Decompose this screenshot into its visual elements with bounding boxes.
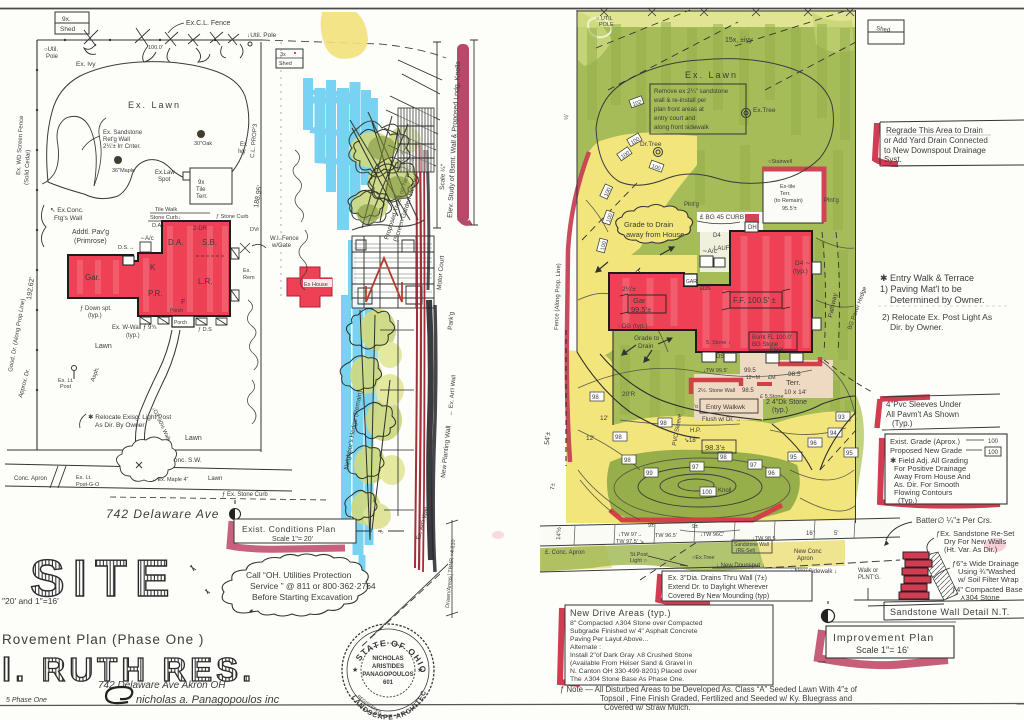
svg-text:★: ★ (352, 666, 358, 674)
svg-text:Terr.: Terr. (786, 378, 801, 387)
svg-text:(Typ.): (Typ.) (892, 419, 913, 428)
svg-text:Post: Post (60, 384, 71, 390)
svg-text:Call “OH. Utilities Protection: Call “OH. Utilities Protection (246, 570, 352, 580)
svg-text:away from House: away from House (626, 230, 684, 239)
svg-text:○Stairwell: ○Stairwell (768, 159, 792, 165)
svg-text:Apron: Apron (797, 556, 813, 562)
svg-text:Subgrade Finished w/ 4" Asphal: Subgrade Finished w/ 4" Asphalt Concrete (570, 628, 698, 635)
svg-text:Knoll: Knoll (718, 488, 731, 494)
svg-text:Remove ex 2¼" sandstone: Remove ex 2¼" sandstone (654, 88, 729, 95)
svg-text:Terr.: Terr. (196, 194, 208, 200)
svg-text:S.B.: S.B. (202, 238, 217, 247)
svg-text:(typ.): (typ.) (793, 268, 808, 275)
svg-text:Ret'g Wall: Ret'g Wall (103, 137, 130, 143)
svg-text:½': ½' (563, 114, 570, 120)
svg-text:F.F. 100.5' ±: F.F. 100.5' ± (733, 296, 776, 305)
svg-text:20'R: 20'R (622, 391, 635, 398)
svg-text:Plnt'g: Plnt'g (824, 198, 839, 204)
svg-text:Floor: Floor (770, 347, 784, 353)
svg-text:↓TW 96C': ↓TW 96C' (700, 532, 724, 538)
svg-text:↓TW 99.5': ↓TW 99.5' (703, 368, 728, 374)
svg-text:Ex House: Ex House (304, 282, 328, 288)
svg-text:D4: D4 (713, 233, 721, 239)
svg-text:(typ.): (typ.) (126, 333, 140, 339)
svg-text:POLE: POLE (599, 22, 614, 28)
svg-text:Ex. Lawn: Ex. Lawn (685, 70, 738, 80)
svg-text:4"Pvc Sleeves Under: 4"Pvc Sleeves Under (886, 400, 962, 409)
svg-text:Dr.Tree: Dr.Tree (640, 141, 662, 148)
svg-text:Ivy: Ivy (238, 149, 246, 155)
svg-text:The ⋏304 Stone Base As Phase O: The ⋏304 Stone Base As Phase One. (570, 676, 684, 683)
svg-text:Ex. 3"Dia. Drains Thru Wall (7: Ex. 3"Dia. Drains Thru Wall (7±) (668, 575, 767, 582)
svg-text:100: 100 (702, 490, 713, 496)
svg-text:All Pavm't As Shown: All Pavm't As Shown (886, 410, 959, 419)
svg-text:DH: DH (748, 225, 757, 231)
svg-text:5. Stone ↓: 5. Stone ↓ (706, 340, 731, 346)
svg-text:Scale ¼": Scale ¼" (439, 163, 447, 190)
svg-text:Ex. Lawn: Ex. Lawn (128, 100, 181, 110)
svg-text:Ex. W-Wall ƒ 9¾: Ex. W-Wall ƒ 9¾ (112, 325, 157, 331)
svg-text:∼A/c: ∼A/c (140, 236, 154, 242)
svg-text:Batter∅ ¼"± Per Crs.: Batter∅ ¼"± Per Crs. (916, 516, 992, 525)
svg-text:Grade to Drain: Grade to Drain (624, 220, 673, 229)
svg-text:✱ Entry Walk & Terrace: ✱ Entry Walk & Terrace (880, 273, 974, 283)
svg-text:ƒ Down spt.: ƒ Down spt. (80, 306, 112, 312)
svg-text:(Ht. Var. As Dir.): (Ht. Var. As Dir.) (944, 545, 998, 554)
svg-text:Syst.: Syst. (884, 155, 902, 164)
svg-text:Proposed New Grade: Proposed New Grade (890, 446, 962, 455)
svg-text:8" Compacted ⋏304 Stone over C: 8" Compacted ⋏304 Stone over Compacted (570, 620, 703, 627)
svg-text:(Available From Heiser Sand &: (Available From Heiser Sand & Gravel in (570, 660, 692, 667)
svg-text:Lawn: Lawn (185, 435, 202, 442)
svg-text:10 x 14': 10 x 14' (784, 389, 807, 396)
svg-text:2¼'±: 2¼'± (622, 286, 636, 293)
svg-text:(Typ.): (Typ.) (898, 496, 918, 505)
svg-text:w/ Soil Filter Wrap: w/ Soil Filter Wrap (957, 575, 1019, 584)
svg-text:Conc. Apron: Conc. Apron (14, 476, 47, 482)
svg-text:36"Maple: 36"Maple (112, 168, 135, 174)
svg-text:99: 99 (646, 471, 653, 477)
svg-text:entry court and: entry court and (654, 115, 696, 122)
svg-text:Covered By New Mounding (typ): Covered By New Mounding (typ) (668, 593, 769, 600)
svg-text:98: 98 (720, 455, 727, 461)
svg-text:Light ○: Light ○ (630, 558, 647, 564)
svg-text:★: ★ (417, 666, 423, 674)
svg-text:Improvement Plan: Improvement Plan (833, 632, 934, 644)
svg-text:3x: 3x (280, 52, 286, 58)
svg-text:100.0': 100.0' (148, 45, 163, 51)
svg-text:54'±: 54'± (544, 431, 552, 445)
svg-text:Dir. by Owner.: Dir. by Owner. (890, 322, 943, 332)
svg-text:(RE-Set): (RE-Set) (736, 548, 756, 554)
svg-text:Alternate :: Alternate : (570, 644, 601, 651)
svg-text:Grade to: Grade to (634, 335, 660, 342)
svg-text:Plnt'g: Plnt'g (684, 202, 699, 208)
svg-text:↘18': ↘18' (684, 438, 697, 444)
svg-text:Scale 1″= 16': Scale 1″= 16' (856, 645, 909, 655)
svg-text:Bsmt FL 100.0': Bsmt FL 100.0' (752, 335, 792, 341)
svg-text:97: 97 (692, 465, 699, 471)
svg-text:LAUF-: LAUF- (714, 246, 731, 252)
svg-text:Ex.: Ex. (243, 268, 251, 274)
svg-text:100: 100 (988, 439, 999, 445)
svg-text:Shed: Shed (60, 26, 76, 33)
svg-text:Tile Walk: Tile Walk (155, 207, 177, 213)
svg-text:w/Gate: w/Gate (271, 243, 292, 249)
svg-text:wall & re-install per: wall & re-install per (653, 97, 706, 104)
svg-text:Covered w/ Straw Mulch.: Covered w/ Straw Mulch. (604, 703, 691, 712)
svg-text:742 Delaware Ave Akron OH: 742 Delaware Ave Akron OH (98, 680, 226, 691)
svg-text:(typ.): (typ.) (88, 313, 102, 319)
svg-text:PANAGOPOULOS: PANAGOPOULOS (362, 672, 413, 678)
svg-text:Exist. Grade (Aprox.): Exist. Grade (Aprox.) (890, 437, 961, 446)
svg-text:nicholas a. Panagopoulos inc: nicholas a. Panagopoulos inc (136, 694, 280, 706)
svg-text:along front sidewalk: along front sidewalk (654, 124, 710, 131)
svg-text:Ex. Sandstone: Ex. Sandstone (103, 130, 143, 136)
svg-text:Exist. Conditions Plan: Exist. Conditions Plan (242, 524, 336, 534)
svg-text:Porch: Porch (174, 320, 187, 326)
svg-text:Topsoil , Fine Finish Graded,: Topsoil , Fine Finish Graded, Fertilized… (600, 694, 852, 703)
svg-text:16': 16' (806, 531, 814, 537)
svg-text:New Drive Areas (typ.): New Drive Areas (typ.) (570, 608, 671, 618)
svg-text:New Conc: New Conc (794, 549, 822, 555)
svg-text:↖ Ex.Conc.: ↖ Ex.Conc. (50, 207, 84, 214)
svg-text:Ex.Law: Ex.Law (155, 170, 175, 176)
svg-text:Install 2"of Dark Gray ⋏8 Crus: Install 2"of Dark Gray ⋏8 Crushed Stone (570, 652, 692, 659)
svg-text:99.5'±: 99.5'± (631, 305, 651, 314)
svg-text:2½. Stone Wall: 2½. Stone Wall (698, 387, 735, 394)
svg-text:2 4"Dk Stone: 2 4"Dk Stone (766, 399, 807, 406)
svg-text:H.P.: H.P. (690, 428, 701, 434)
svg-text:K: K (150, 263, 156, 272)
svg-text:Tile: Tile (196, 187, 206, 193)
svg-text:↓Util. Pole: ↓Util. Pole (247, 32, 277, 39)
svg-text:Ex.C.L. Fence: Ex.C.L. Fence (186, 20, 230, 27)
svg-text:99.5: 99.5 (744, 368, 756, 374)
svg-text:○: ○ (380, 530, 384, 536)
svg-text:Gar: Gar (633, 296, 646, 305)
svg-text:P.R.: P.R. (148, 289, 163, 298)
svg-text:Pole: Pole (46, 54, 59, 60)
svg-text:←Ex. Maple 4": ←Ex. Maple 4" (152, 477, 189, 483)
svg-text:95.5'±: 95.5'± (782, 206, 797, 212)
svg-text:Post-G-O: Post-G-O (76, 482, 100, 488)
svg-text:or Add Yard Drain Connected: or Add Yard Drain Connected (884, 136, 988, 145)
svg-text:5 Phase One: 5 Phase One (6, 697, 47, 704)
svg-text:(typ.): (typ.) (772, 407, 788, 414)
svg-text:30"Oak: 30"Oak (194, 141, 212, 147)
svg-text:PLNT'G.: PLNT'G. (858, 575, 881, 581)
svg-text:95: 95 (846, 451, 853, 457)
svg-text:Shed: Shed (279, 61, 292, 67)
svg-text:98: 98 (615, 435, 622, 441)
svg-text:96: 96 (768, 471, 775, 477)
svg-text:W.I. Fence: W.I. Fence (270, 236, 299, 242)
svg-text:Drain: Drain (638, 343, 654, 350)
svg-text:Spot: Spot (158, 177, 171, 183)
svg-text:Gar.: Gar. (85, 273, 100, 282)
svg-text:Ex: Ex (240, 142, 247, 148)
svg-text:£ BG 45 CURB: £ BG 45 CURB (700, 214, 744, 221)
svg-text:○Util.: ○Util. (44, 47, 58, 53)
svg-text:14'½: 14'½ (555, 527, 563, 540)
svg-text:100: 100 (988, 450, 999, 456)
svg-text:Lawn: Lawn (208, 476, 222, 482)
svg-text:Determined by Owner.: Determined by Owner. (890, 295, 985, 306)
svg-text:98.5: 98.5 (788, 371, 801, 378)
svg-text:ƒ D.S: ƒ D.S (198, 327, 212, 333)
svg-text:ARISTIDES: ARISTIDES (372, 664, 404, 670)
svg-text:98: 98 (660, 421, 667, 427)
svg-text:ƒ Ex. Stone Curb: ƒ Ex. Stone Curb (222, 492, 268, 498)
svg-text:9x.: 9x. (62, 16, 71, 23)
svg-text:○DS (typ.): ○DS (typ.) (618, 323, 648, 330)
svg-text:TW 96.5': TW 96.5' (655, 533, 677, 539)
svg-text:2¼'± Irr Cnter.: 2¼'± Irr Cnter. (103, 144, 141, 150)
svg-text:to New Downspout Drainage: to New Downspout Drainage (884, 146, 986, 155)
svg-text:12∼M: 12∼M (746, 375, 760, 381)
svg-text:NICHOLAS: NICHOLAS (372, 656, 403, 662)
svg-text:£M: £M (768, 375, 776, 381)
svg-text:98.3'±: 98.3'± (705, 443, 725, 452)
svg-text:12': 12' (586, 435, 594, 442)
svg-text:Walk or: Walk or (858, 568, 878, 574)
svg-text:742 Delaware Ave: 742 Delaware Ave (106, 507, 219, 521)
svg-text:✱ Relocate Exisg. Light Post: ✱ Relocate Exisg. Light Post (88, 413, 171, 421)
svg-text:Rovement Plan (Phase One ): Rovement Plan (Phase One ) (2, 632, 204, 647)
svg-text:Sandstone Wall Detail N.T.: Sandstone Wall Detail N.T. (890, 607, 1010, 617)
svg-text:96: 96 (810, 441, 817, 447)
svg-text:As Dir. By Owner: As Dir. By Owner (95, 422, 145, 429)
svg-text:5': 5' (834, 531, 838, 537)
svg-text:12': 12' (600, 415, 608, 422)
svg-text:(to Remain): (to Remain) (774, 198, 803, 204)
svg-text:DVr: DVr (250, 227, 259, 233)
svg-text:↓TW 97→: ↓TW 97→ (618, 532, 642, 538)
svg-text:Ex-tile: Ex-tile (780, 184, 795, 190)
svg-text:Flush w/ Dr. →: Flush w/ Dr. → (702, 417, 741, 423)
svg-text:Before Starting Excavation: Before Starting Excavation (252, 592, 353, 602)
svg-text:98.5: 98.5 (742, 388, 754, 394)
svg-text:F: F (181, 299, 185, 306)
svg-text:£DS: £DS (700, 286, 711, 292)
svg-text:7±: 7± (550, 482, 557, 490)
svg-text:Rem: Rem (243, 275, 255, 281)
svg-text:Service ” @ 811 or 800·362·276: Service ” @ 811 or 800·362·2764 (250, 581, 376, 591)
svg-text:ƒ Stone Curb: ƒ Stone Curb (216, 214, 248, 220)
svg-text:98: 98 (592, 395, 599, 401)
svg-text:GAR: GAR (686, 279, 697, 285)
svg-text:Terr.: Terr. (780, 191, 791, 197)
svg-text:Ftg's Wall: Ftg's Wall (54, 215, 83, 222)
svg-text:Ex. Lt.: Ex. Lt. (76, 475, 92, 481)
svg-text:○Ex.Tree: ○Ex.Tree (692, 555, 714, 561)
svg-text:D.A.: D.A. (168, 238, 184, 247)
svg-text:D.A.·: D.A.· (152, 223, 165, 229)
svg-text:Lawn: Lawn (95, 343, 112, 350)
svg-text:15x, ±ivy: 15x, ±ivy (725, 37, 753, 44)
svg-text:9x: 9x (198, 180, 204, 186)
svg-text:Addtl. Pav'g: Addtl. Pav'g (72, 229, 109, 236)
svg-text:D.S.→: D.S.→ (118, 245, 134, 251)
svg-text:Ex.Tree: Ex.Tree (753, 107, 776, 114)
svg-text:98: 98 (624, 458, 631, 464)
svg-text:ƒ Note — All Disturbed Areas t: ƒ Note — All Disturbed Areas to be Devel… (560, 685, 858, 694)
svg-text:plan front areas at: plan front areas at (654, 106, 704, 113)
svg-text:2-DR: 2-DR (193, 226, 208, 232)
svg-text:DS: DS (716, 354, 724, 360)
svg-text:Scale 1"= 20': Scale 1"= 20' (272, 536, 313, 543)
svg-text:93: 93 (838, 415, 845, 421)
svg-text:(Primrose): (Primrose) (74, 238, 107, 245)
svg-text:Extend Dr. to Daylight Whereve: Extend Dr. to Daylight Wherever (668, 584, 769, 591)
svg-text:N. Canton OH 330·499·8201) P: N. Canton OH 330·499·8201) Placed over (570, 668, 698, 675)
svg-text:2) Relocate Ex. Post Light As: 2) Relocate Ex. Post Light As (882, 312, 992, 322)
svg-text:'o: 'o (694, 404, 698, 410)
svg-text:L.R.: L.R. (198, 277, 213, 286)
svg-text:Regrade This Area to Drain: Regrade This Area to Drain (886, 126, 983, 135)
svg-text:Paving Per Layut Above...: Paving Per Layut Above... (570, 636, 648, 643)
svg-text:″20' and 1″=16': ″20' and 1″=16' (2, 596, 59, 606)
svg-text:1) Paving Mat'l to be: 1) Paving Mat'l to be (880, 284, 962, 294)
svg-text:95: 95 (790, 455, 797, 461)
svg-text:Porch: Porch (170, 308, 183, 314)
svg-text:D4 ∼: D4 ∼ (795, 260, 811, 267)
svg-text:601: 601 (383, 680, 394, 686)
svg-text:£. Conc. Apron: £. Conc. Apron (545, 550, 585, 556)
svg-text:Entry Walkwk: Entry Walkwk (706, 404, 746, 411)
svg-text:Ex. Ivy: Ex. Ivy (76, 61, 96, 68)
svg-text:97: 97 (750, 463, 757, 469)
